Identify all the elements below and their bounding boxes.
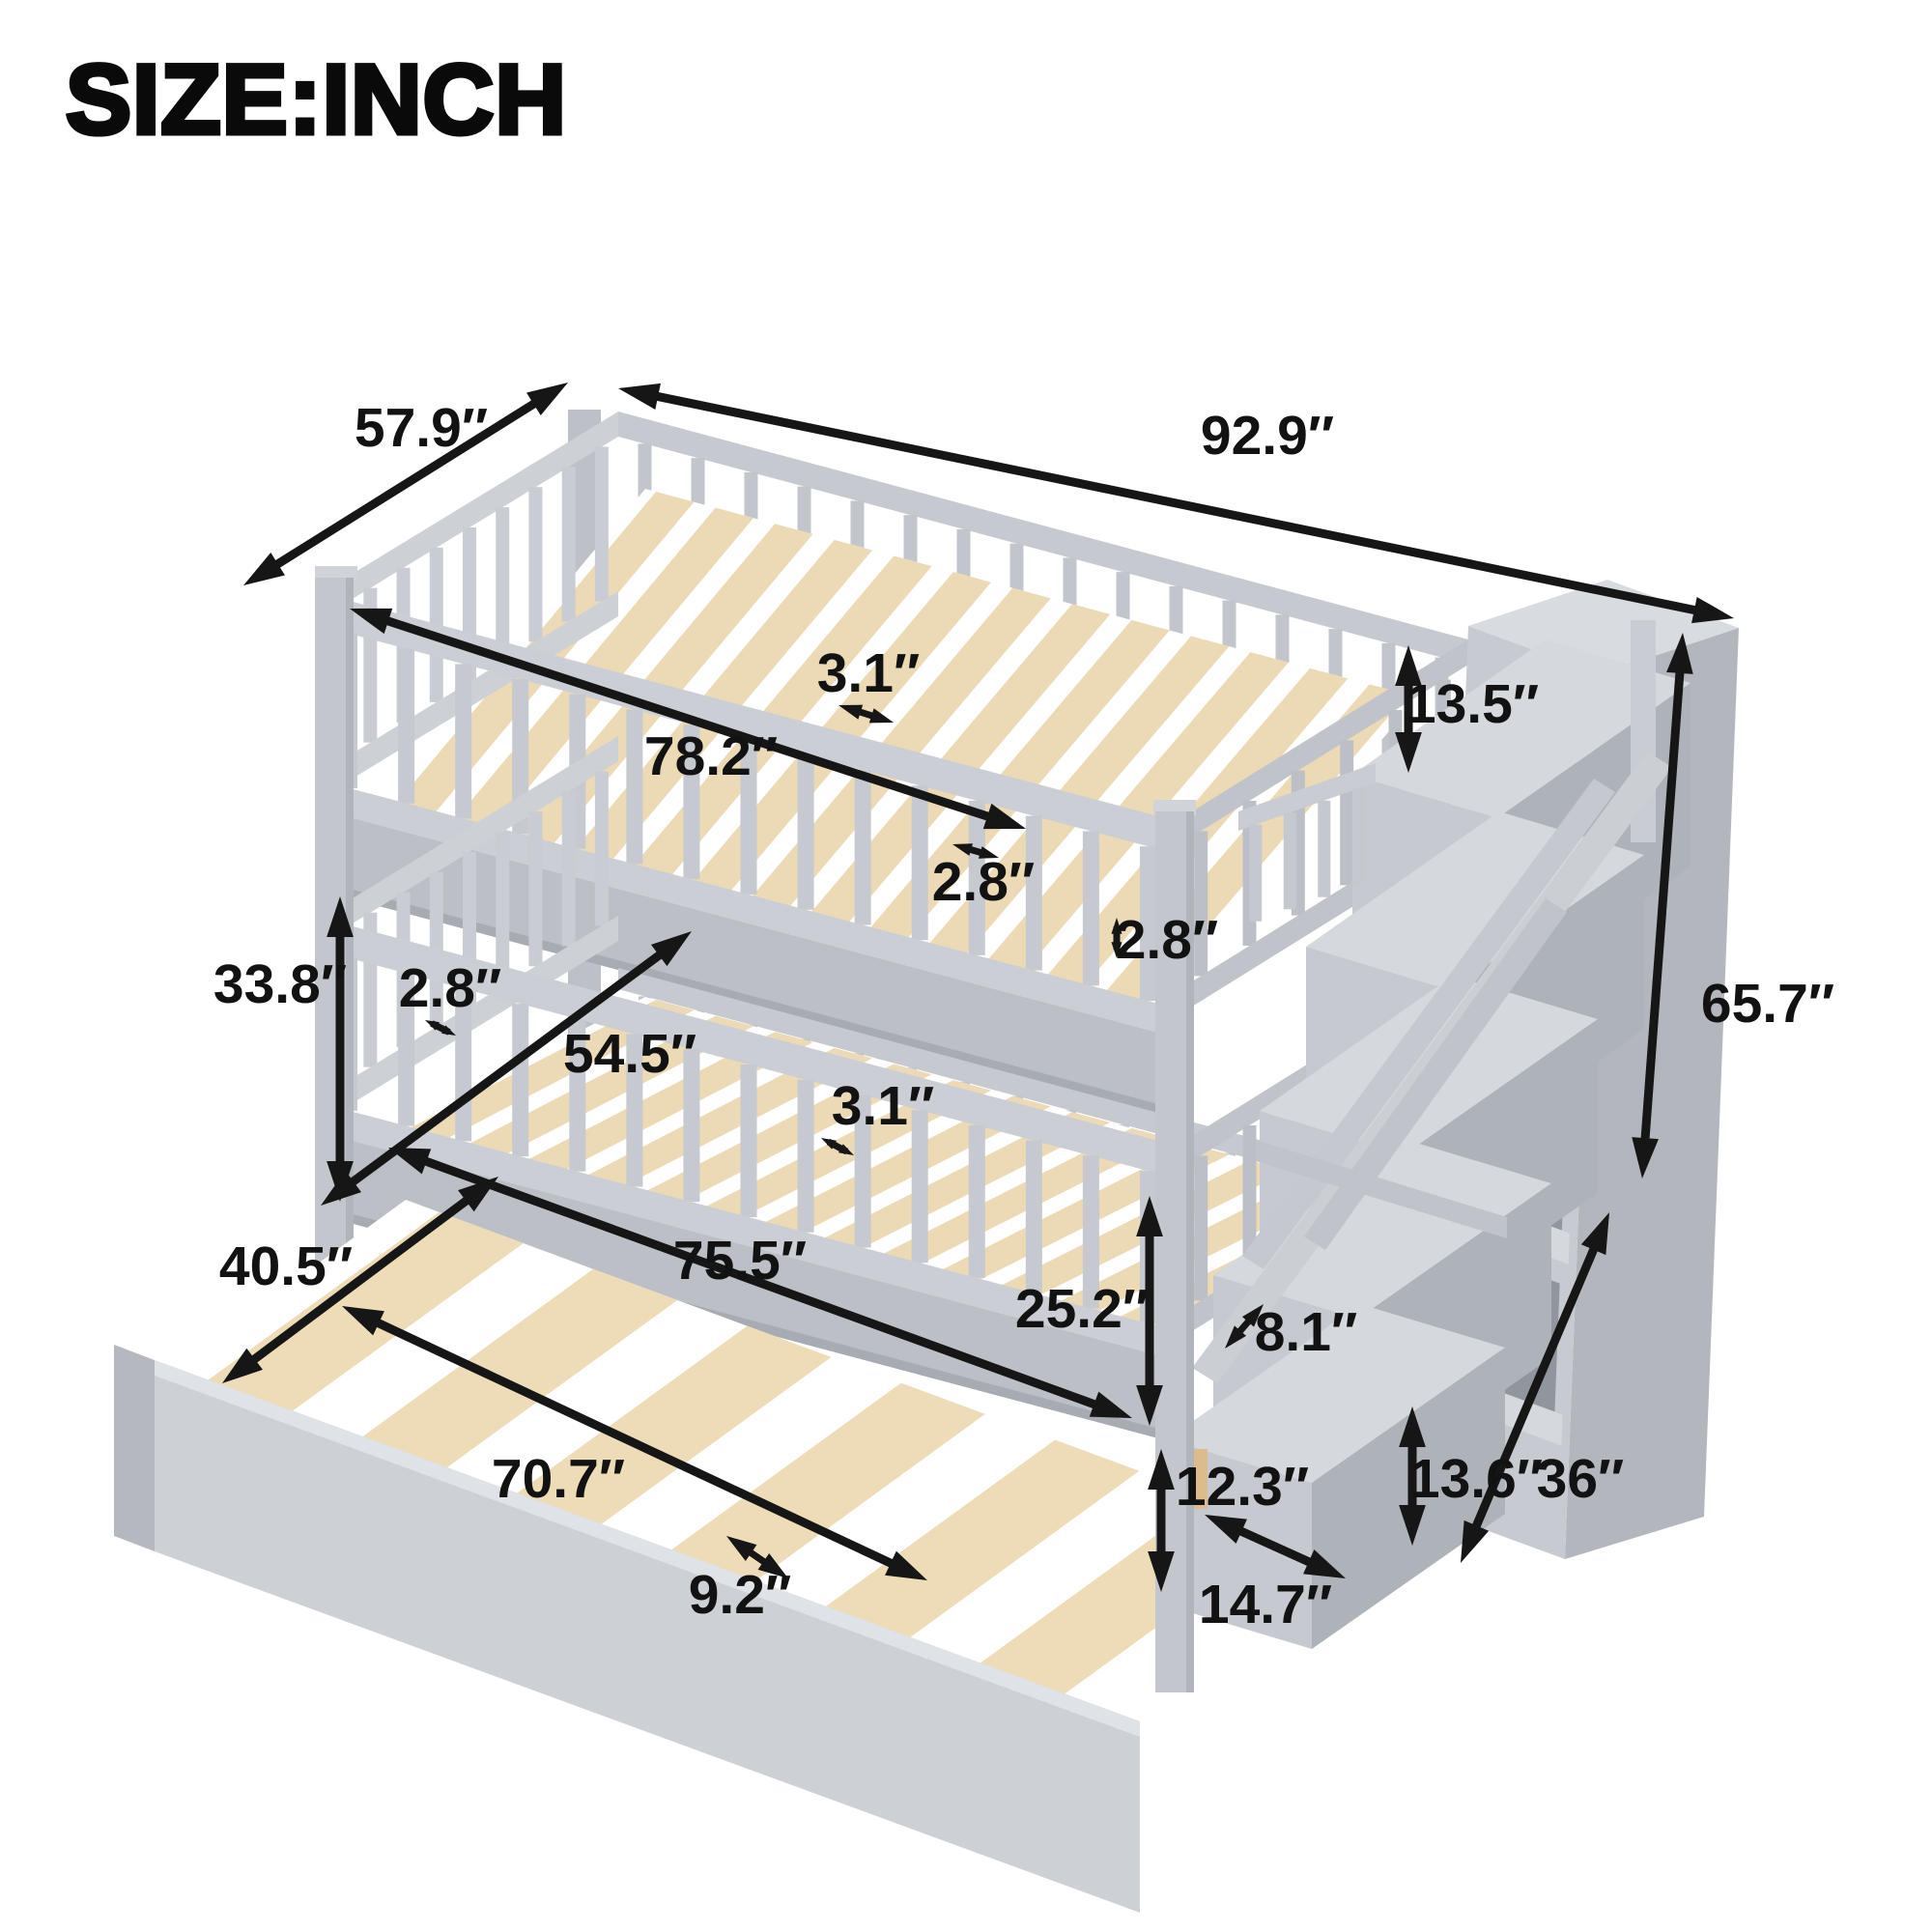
dim-label-overall-length: 92.9″ bbox=[1201, 405, 1334, 467]
rail-spindle bbox=[398, 649, 414, 804]
rail-spindle bbox=[1249, 825, 1262, 922]
dim-label-bunk-clearance: 33.8″ bbox=[213, 953, 347, 1015]
rail-spindle bbox=[595, 771, 609, 925]
rail-spindle bbox=[528, 811, 542, 966]
rail-spindle bbox=[1026, 1141, 1042, 1293]
rail-spindle bbox=[912, 785, 928, 940]
dim-label-upper-slat-gap: 2.8″ bbox=[932, 851, 1036, 913]
rail-spindle bbox=[741, 1065, 757, 1217]
rail-spindle bbox=[1318, 801, 1330, 897]
dim-label-upper-inner-length: 78.2″ bbox=[644, 725, 778, 787]
product-size-diagram: SIZE:INCH 57.9″ 92.9″ 78.2″ 3.1″ 13.5″ 2… bbox=[0, 0, 1932, 1932]
arrowhead bbox=[618, 384, 661, 410]
rail-spindle bbox=[1194, 1155, 1207, 1300]
arrowhead bbox=[243, 553, 285, 585]
rail-spindle bbox=[1352, 788, 1365, 885]
dim-label-lower-slat-width: 3.1″ bbox=[832, 1075, 935, 1137]
dim-label-lower-inner-length: 75.5″ bbox=[673, 1230, 807, 1292]
rail-spindle bbox=[528, 487, 542, 641]
dim-label-upper-depth: 57.9″ bbox=[355, 397, 488, 459]
rail-spindle bbox=[562, 467, 576, 621]
dim-label-trundle-width: 40.5″ bbox=[219, 1236, 353, 1297]
dim-label-trundle-length: 70.7″ bbox=[492, 1448, 625, 1510]
dim-label-lower-inner-depth: 54.5″ bbox=[563, 1023, 696, 1085]
rail-spindle bbox=[855, 770, 871, 924]
rail-spindle bbox=[496, 507, 509, 662]
rail-spindle bbox=[1284, 812, 1296, 909]
page-title: SIZE:INCH bbox=[66, 44, 567, 155]
dim-label-lower-bunk-height: 25.2″ bbox=[1015, 1278, 1149, 1340]
rail-spindle bbox=[455, 664, 471, 818]
rail-spindle bbox=[798, 755, 814, 910]
bed-illustration bbox=[114, 383, 1739, 1913]
arrowhead bbox=[526, 383, 568, 415]
dim-label-overall-height: 65.7″ bbox=[1701, 973, 1834, 1035]
dim-label-trundle-slat-gap: 9.2″ bbox=[689, 1564, 792, 1626]
dim-label-upper-slat-width: 3.1″ bbox=[817, 642, 921, 704]
arrowhead bbox=[1691, 597, 1734, 623]
rail-spindle bbox=[1083, 831, 1099, 985]
dim-label-step-width: 14.7″ bbox=[1199, 1574, 1332, 1635]
dim-label-step-depth: 8.1″ bbox=[1255, 1301, 1358, 1363]
dim-label-staircase-depth: 36″ bbox=[1537, 1448, 1625, 1510]
dim-label-guardrail-height: 13.5″ bbox=[1406, 673, 1539, 735]
dim-label-step-height: 13.6″ bbox=[1409, 1448, 1543, 1510]
dim-label-trundle-height: 12.3″ bbox=[1176, 1456, 1309, 1518]
rail-spindle bbox=[969, 1125, 985, 1278]
rail-spindle bbox=[626, 710, 642, 865]
rail-spindle bbox=[595, 446, 609, 601]
rail-spindle bbox=[1340, 740, 1353, 885]
trundle-board-end-cap bbox=[114, 1345, 155, 1551]
dim-label-lower-rail-gap: 2.8″ bbox=[399, 957, 502, 1019]
dim-label-upper-rail-thickness: 2.8″ bbox=[1116, 909, 1219, 971]
rail-spindle bbox=[798, 1080, 814, 1233]
rail-spindle bbox=[512, 1004, 528, 1156]
rail-spindle bbox=[562, 791, 576, 946]
bunk-bed-dimension-diagram: SIZE:INCH 57.9″ 92.9″ 78.2″ 3.1″ 13.5″ 2… bbox=[0, 0, 1932, 1932]
